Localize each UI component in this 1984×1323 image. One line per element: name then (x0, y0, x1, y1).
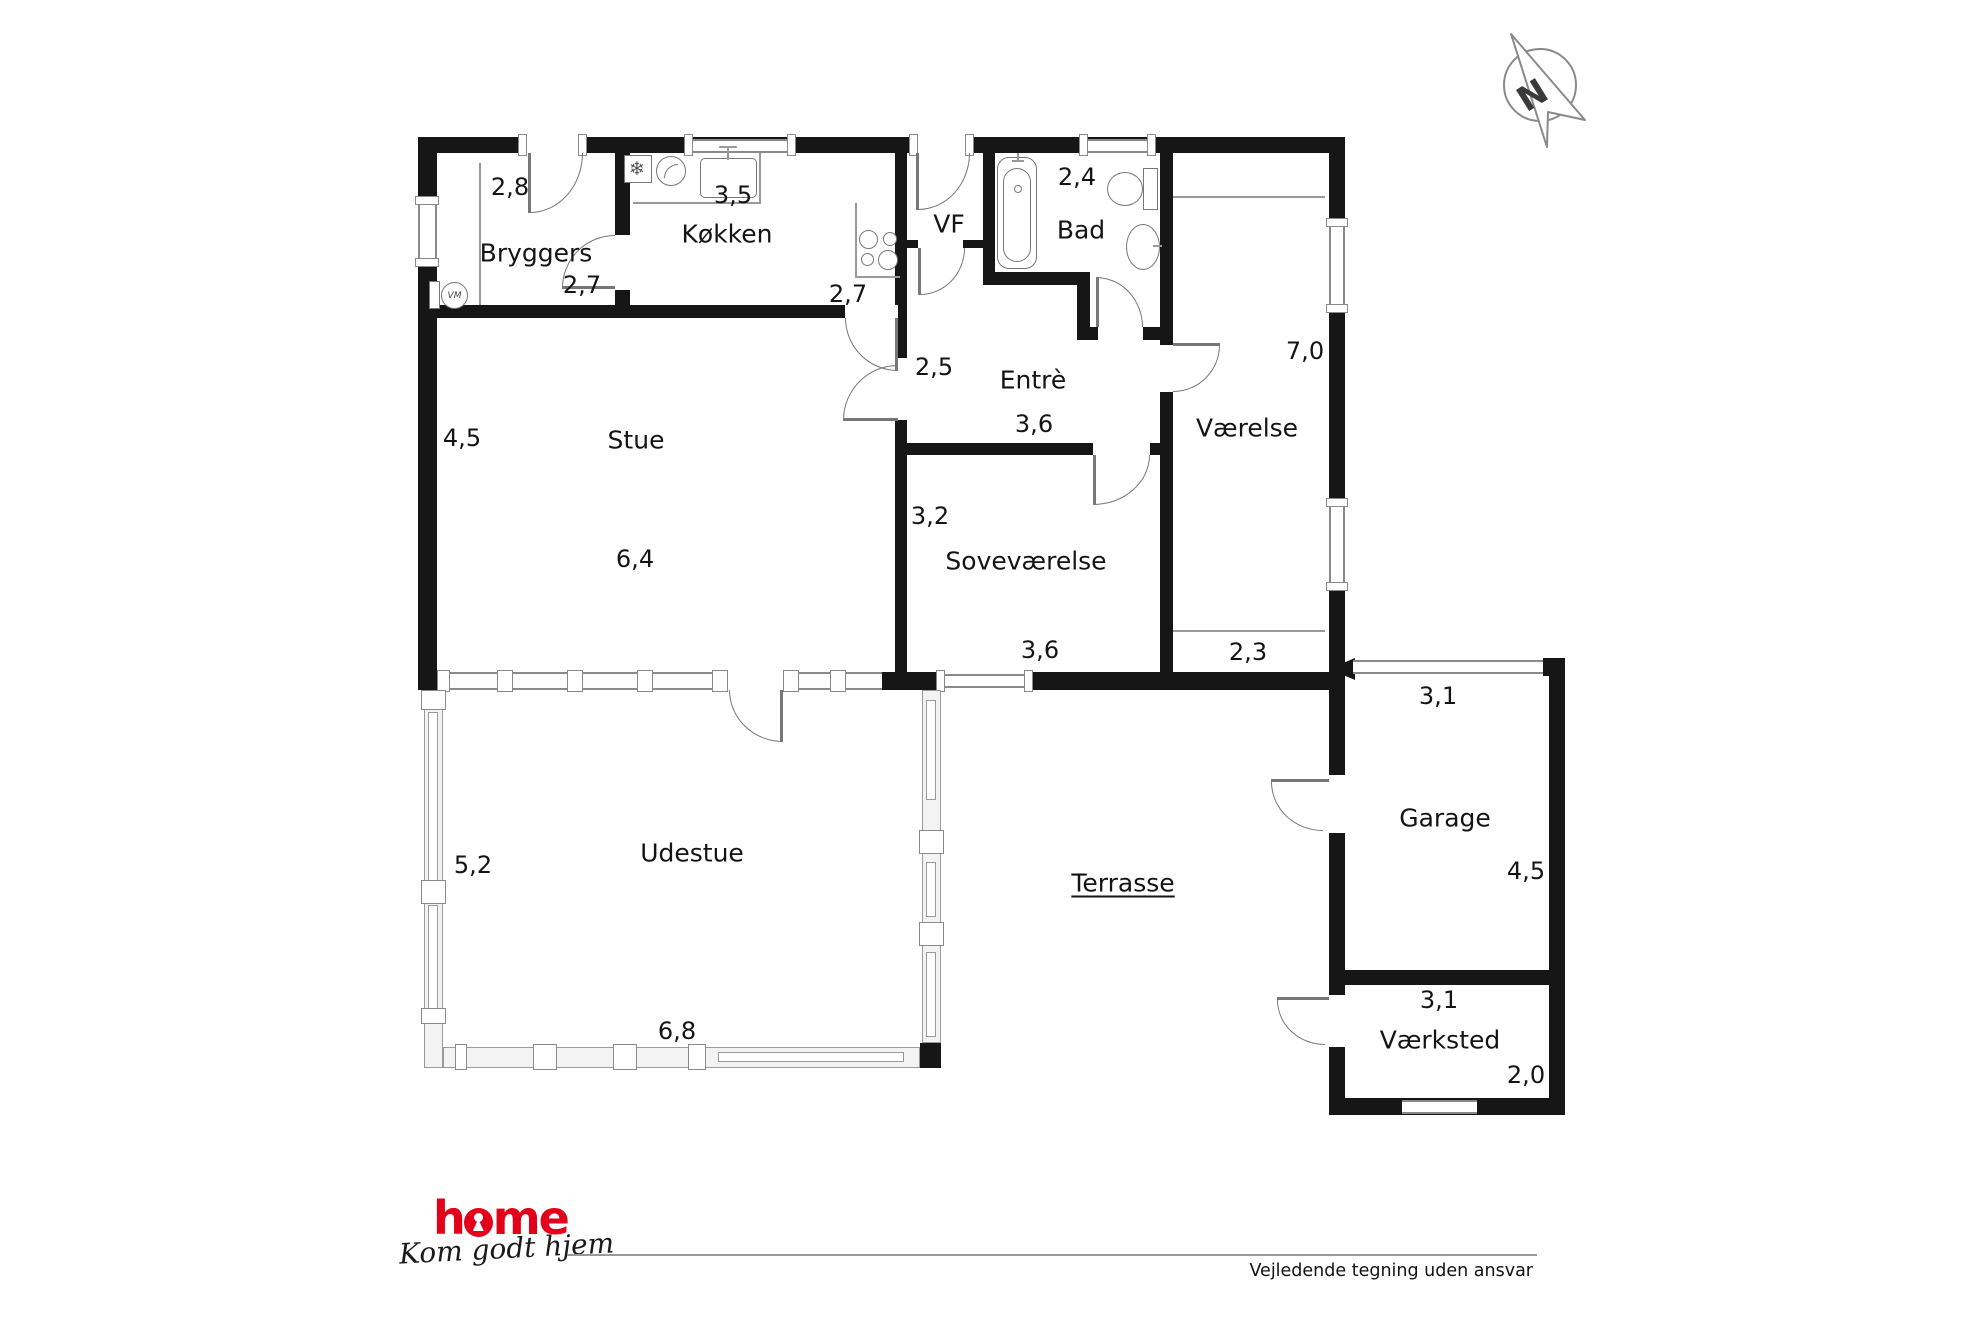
dim-bryggers-depth: 2,7 (563, 271, 601, 299)
dim-garage-width: 3,1 (1419, 682, 1457, 710)
door-opening (1098, 327, 1143, 340)
door-arc (920, 248, 965, 295)
counter-line (855, 276, 900, 278)
dim-sovevaerelse-depth: 3,2 (911, 502, 949, 530)
window-cap (415, 196, 439, 205)
window-mullion (567, 670, 583, 692)
door-arc (530, 153, 583, 213)
window-cap (1326, 304, 1348, 313)
wall-segment (1077, 272, 1090, 340)
dim-entre-length: 3,6 (1015, 410, 1053, 438)
window-cap (415, 258, 439, 267)
room-label-bryggers: Bryggers (480, 239, 593, 268)
dim-sovevaerelse-width: 3,6 (1021, 636, 1059, 664)
door-arc (729, 690, 783, 742)
window-mullion (497, 670, 513, 692)
dim-kokken-width: 3,5 (714, 181, 752, 209)
wardrobe-line (1173, 196, 1325, 198)
window-mullion (455, 1044, 467, 1070)
basin-icon (1126, 224, 1160, 270)
room-label-garage: Garage (1399, 804, 1491, 833)
door-opening (1329, 995, 1345, 1047)
corner-post (920, 1043, 941, 1068)
wall-segment (1345, 970, 1549, 985)
window-cap (936, 670, 945, 692)
dim-vaerksted-depth: 2,0 (1507, 1061, 1545, 1089)
wall-segment (895, 420, 907, 690)
window-mullion (637, 670, 653, 692)
room-label-sovevaerelse: Soveværelse (945, 547, 1106, 576)
window-cap (1024, 670, 1033, 692)
compass-icon: N (1480, 15, 1610, 165)
window-mullion (712, 670, 728, 692)
wall-segment (1143, 327, 1160, 340)
window-mullion (421, 880, 446, 904)
washer-box-icon (429, 281, 440, 309)
window-mullion (688, 1044, 706, 1070)
dim-kokken-depth: 2,7 (829, 280, 867, 308)
disclaimer-text: Vejledende tegning uden ansvar (1249, 1261, 1533, 1281)
toilet-bowl-icon (1107, 172, 1143, 206)
window-mullion (830, 670, 846, 692)
snowflake-icon: ❄ (629, 160, 645, 179)
window (1085, 139, 1150, 153)
door-opening (728, 671, 783, 691)
room-label-vf: VF (933, 210, 964, 239)
toilet-tank-icon (1143, 168, 1158, 210)
window (926, 952, 936, 1037)
window (1353, 660, 1543, 674)
window-mullion (421, 1008, 446, 1024)
door-opening (1329, 775, 1345, 833)
stove-burner-icon (878, 250, 898, 270)
window-mullion (919, 830, 944, 854)
dim-vaerelse-niche: 2,3 (1229, 638, 1267, 666)
door-arc (1173, 345, 1220, 392)
dim-udestue-depth: 5,2 (454, 851, 492, 879)
door-opening (1160, 345, 1173, 392)
window (943, 674, 1027, 688)
room-label-terrasse: Terrasse (1071, 869, 1174, 898)
window-cap (787, 134, 796, 156)
door-arc (845, 318, 898, 371)
window-mullion (919, 922, 944, 946)
wall-segment (895, 240, 918, 248)
door-opening (522, 137, 583, 153)
window (718, 1052, 904, 1062)
room-label-vaerksted: Værksted (1380, 1026, 1500, 1055)
floor-plan: ❄ VM Bryggers 2,8 2,7 Køkken 3,5 2,7 VF … (0, 0, 1984, 1323)
dim-bryggers-width: 2,8 (491, 173, 529, 201)
door-arc (1271, 782, 1323, 831)
dim-udestue-width: 6,8 (658, 1017, 696, 1045)
washing-machine-label: VM (448, 291, 462, 301)
wall-segment (1329, 676, 1345, 775)
window-mullion (437, 670, 450, 692)
tap-icon (719, 146, 737, 148)
window (1329, 225, 1345, 307)
dim-entre-width: 2,5 (915, 353, 953, 381)
window (690, 139, 790, 153)
door-opening (1093, 443, 1150, 455)
dim-bad-width: 2,4 (1058, 163, 1096, 191)
footer-divider (567, 1254, 1537, 1256)
window-cap (1147, 134, 1156, 156)
stove-burner-icon (859, 230, 878, 249)
window-cap (684, 134, 693, 156)
window-cap (1326, 218, 1348, 227)
room-label-bad: Bad (1057, 216, 1105, 245)
dim-vaerksted-width: 3,1 (1420, 986, 1458, 1014)
wall-segment (983, 153, 995, 285)
counter-line (759, 153, 761, 204)
stove-burner-icon (883, 232, 897, 246)
window (418, 203, 437, 260)
tap-icon (727, 146, 729, 160)
door-cap (518, 134, 527, 156)
bathtub-inner (1003, 168, 1031, 262)
washing-machine-icon: VM (441, 282, 468, 309)
window-mullion (421, 690, 446, 710)
tap-icon (1017, 153, 1019, 162)
room-label-kokken: Køkken (682, 220, 773, 249)
window (428, 712, 438, 882)
window (1402, 1100, 1477, 1114)
floorplan-page: { "plan": { "compass": { "letter": "N" }… (0, 0, 1984, 1323)
wall-segment (1329, 833, 1345, 997)
room-label-entre: Entrè (1000, 366, 1067, 395)
door-opening (615, 235, 630, 290)
wall-segment (1160, 153, 1173, 345)
door-arc (843, 365, 898, 420)
window-cap (1326, 498, 1348, 507)
closet-line (479, 163, 481, 305)
wall-segment (1090, 327, 1098, 340)
wall-segment (963, 240, 995, 248)
dim-garage-depth: 4,5 (1507, 857, 1545, 885)
window (428, 905, 438, 1010)
wall-segment (1027, 672, 1345, 690)
window (926, 700, 936, 800)
door-arc (1277, 1000, 1325, 1045)
drain-icon (1014, 185, 1022, 193)
door-arc (1093, 455, 1150, 505)
dim-stue-depth: 4,5 (443, 424, 481, 452)
door-arc (918, 153, 970, 210)
window-cap (1326, 582, 1348, 591)
window (926, 862, 936, 917)
stove-burner-icon (861, 253, 874, 266)
door-opening (913, 137, 970, 153)
room-label-stue: Stue (608, 426, 665, 455)
room-label-udestue: Udestue (640, 839, 744, 868)
tap-icon (1153, 245, 1162, 247)
wall-segment (1549, 658, 1565, 1115)
counter-line (855, 203, 857, 278)
door-arc (1096, 277, 1143, 327)
room-label-vaerelse: Værelse (1196, 414, 1298, 443)
window-mullion (613, 1044, 637, 1070)
window-mullion (533, 1044, 557, 1070)
window (1329, 505, 1345, 585)
dim-stue-width: 6,4 (616, 545, 654, 573)
dim-vaerelse-length: 7,0 (1286, 337, 1324, 365)
window-cap (1079, 134, 1088, 156)
wall-segment (983, 272, 1085, 285)
window-mullion (783, 670, 799, 692)
wall-segment (1160, 392, 1173, 690)
window-sill-line (1173, 630, 1325, 632)
